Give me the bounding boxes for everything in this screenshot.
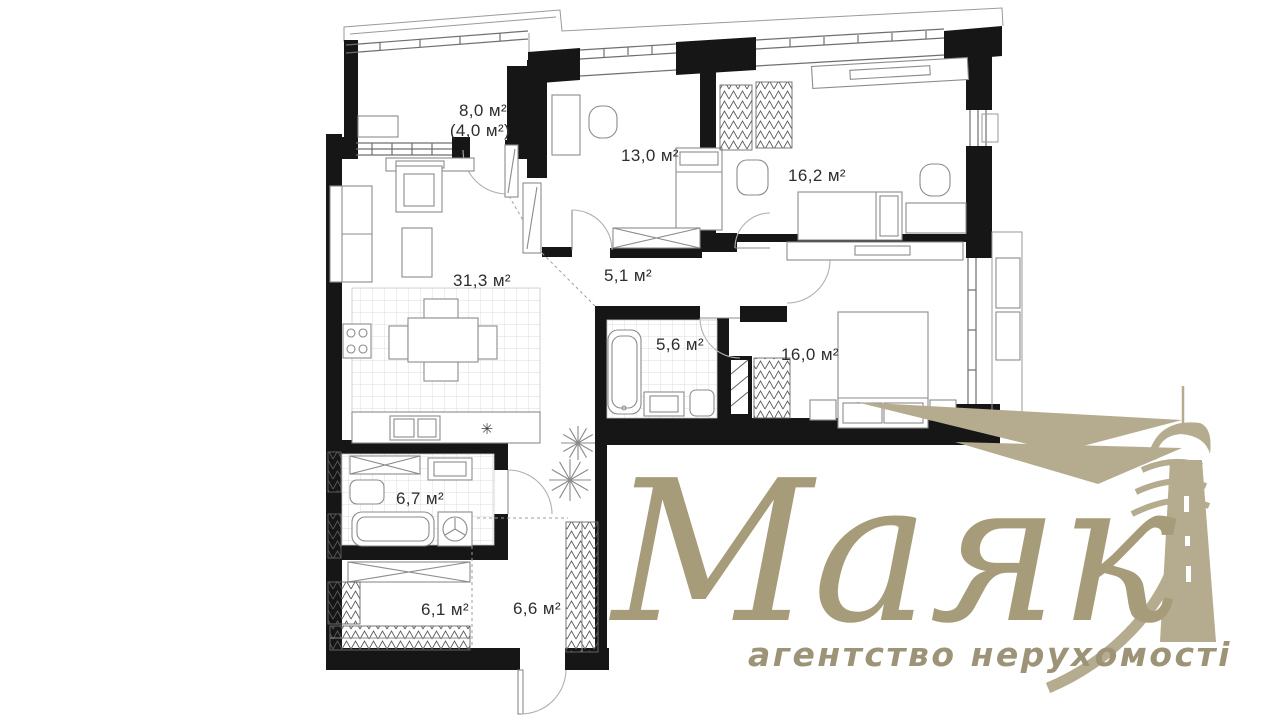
duct-hatched — [328, 514, 341, 558]
plant — [549, 459, 591, 501]
door-entrance — [521, 670, 566, 714]
wall-top-mid — [676, 37, 756, 75]
fridge-symbol: ✳ — [481, 421, 494, 438]
armchair — [396, 166, 442, 212]
kitchen-counter — [352, 412, 540, 443]
bedroom3-furniture — [731, 242, 963, 428]
brand-tagline: агентство нерухомості — [748, 635, 1232, 674]
plant — [561, 426, 595, 460]
label-terrace-2: (4,0 м²) — [450, 121, 510, 140]
wall-top-corner-left — [528, 48, 580, 84]
window-bedroom1 — [580, 44, 676, 76]
floorplan-canvas: ✳ — [0, 0, 1280, 720]
toilet — [690, 390, 714, 416]
label-wardrobe: 6,1 м² — [421, 600, 469, 619]
wall-bath2-right-a — [494, 454, 508, 470]
stove — [343, 324, 371, 358]
closet-hatched — [756, 82, 792, 148]
dining-chair — [389, 326, 408, 359]
wall-bottom-left — [326, 648, 520, 670]
label-bedroom3: 16,0 м² — [781, 345, 839, 364]
dining-chair — [424, 362, 458, 381]
desk — [552, 95, 580, 155]
exterior-contour — [344, 8, 1003, 64]
balcony-right — [992, 232, 1022, 424]
wall-top-corner-right — [944, 26, 1002, 61]
duct-hatched — [328, 452, 341, 492]
desk-chair — [589, 106, 617, 138]
tower-window — [1184, 496, 1189, 512]
balcony-bench — [996, 258, 1020, 308]
window-bedroom3-balcony — [968, 258, 976, 404]
door-bedroom2 — [735, 213, 770, 248]
label-terrace: 8,0 м² — [459, 101, 507, 120]
armchair — [737, 160, 768, 195]
label-hallway: 6,6 м² — [513, 599, 561, 618]
console — [787, 242, 963, 260]
terrace-bench — [358, 116, 398, 137]
wall-terrace-sill-left — [326, 137, 358, 159]
label-bathroom2: 6,7 м² — [396, 489, 444, 508]
tv-console — [812, 58, 969, 89]
single-bed — [676, 148, 722, 230]
tower-window — [1186, 566, 1191, 582]
floorplan-svg: ✳ — [0, 0, 1280, 720]
closet-hatched — [720, 85, 752, 150]
door-bedroom1 — [572, 210, 612, 250]
wall-bath2-bottom — [340, 545, 508, 560]
door-bedroom3 — [787, 260, 830, 303]
wall-bath2-right-b — [494, 514, 508, 545]
window-living — [356, 143, 452, 155]
nightstand — [810, 400, 836, 420]
single-bed — [798, 192, 902, 240]
toilet — [350, 480, 384, 504]
wall-terrace-sill-mid — [452, 137, 470, 159]
wall-bath1-top — [595, 306, 700, 320]
bathtub — [608, 330, 641, 414]
brand-wordmark: Маяк — [609, 439, 1177, 667]
bedroom1-furniture — [552, 85, 752, 248]
wall-terrace-left — [344, 40, 358, 137]
label-corridor: 5,1 м² — [604, 266, 652, 285]
wall-right-upper — [966, 56, 992, 110]
sink — [428, 458, 472, 480]
wall-bedroom1-bottom — [610, 248, 702, 258]
wall-stub-bedroom2 — [716, 233, 737, 252]
label-bedroom2: 16,2 м² — [788, 166, 846, 185]
label-bedroom1: 13,0 м² — [621, 146, 679, 165]
dining-chair — [478, 326, 497, 359]
bedroom2-furniture — [737, 58, 969, 240]
wall-stub-corridor — [542, 247, 572, 257]
dining-chair — [424, 299, 458, 318]
tower-window — [1185, 536, 1190, 546]
dining-table — [408, 318, 478, 362]
door-bathroom2 — [508, 470, 552, 514]
wall-right-mid — [966, 146, 992, 258]
window-right-wall — [970, 110, 998, 146]
wall-bath1-top-right — [740, 306, 787, 322]
window-terrace — [346, 31, 528, 53]
label-living: 31,3 м² — [453, 271, 511, 290]
label-bathroom1: 5,6 м² — [656, 335, 704, 354]
coffee-table — [402, 228, 432, 277]
duct-inner — [731, 360, 748, 414]
desk-chair — [920, 164, 950, 196]
desk — [906, 203, 966, 233]
closet-hatched — [754, 358, 790, 418]
balcony-bench — [996, 312, 1020, 360]
closet-hatched — [328, 582, 360, 624]
